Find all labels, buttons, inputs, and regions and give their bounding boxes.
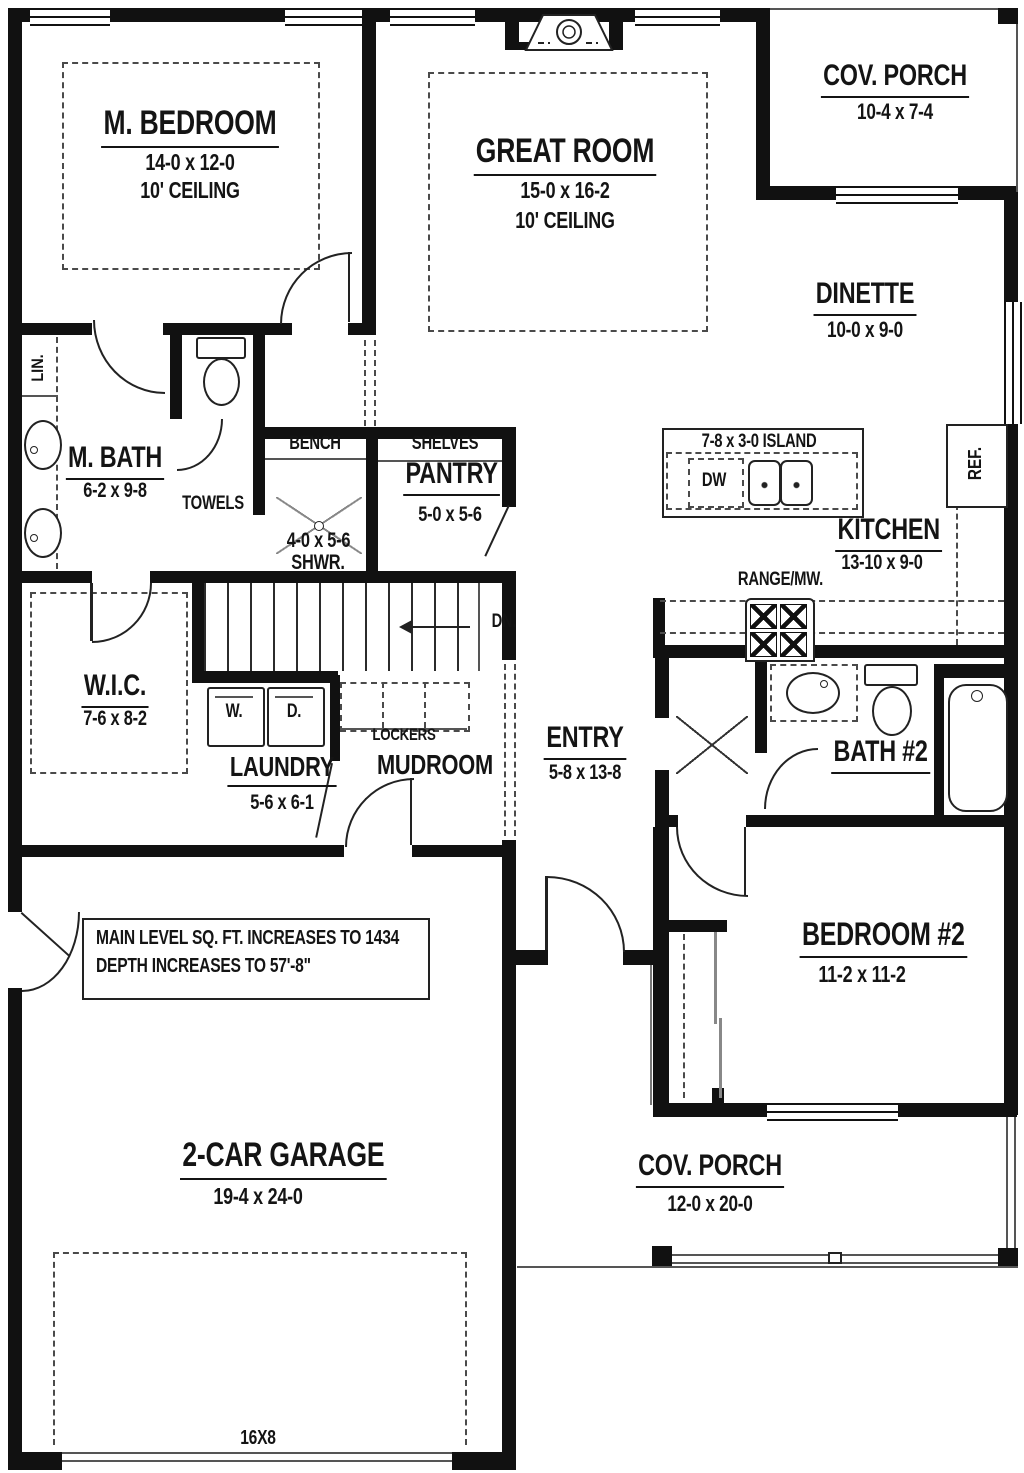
- locker-divider: [382, 682, 386, 728]
- bench-line: [265, 458, 366, 460]
- sink-icon: [24, 508, 62, 558]
- door-leaf-mudroom: [410, 778, 412, 845]
- window: [635, 8, 720, 26]
- window-dinette: [1004, 302, 1022, 424]
- counter-edge-bottom-inner: [660, 632, 1004, 636]
- label-dryer: D.: [275, 702, 314, 722]
- wall-hall-a: [655, 658, 669, 718]
- wall-hall-b: [655, 770, 669, 817]
- door-arc-wc: [177, 419, 223, 471]
- garage-floor-lines: [53, 1252, 467, 1445]
- wall-mbedroom-bottom-b: [163, 323, 292, 335]
- wall-closet-right: [755, 658, 767, 753]
- porch-post: [652, 1246, 672, 1266]
- wall-kitchen-bottom: [653, 645, 1017, 658]
- burner-icon: [750, 604, 777, 629]
- dryer-panel-line: [275, 696, 313, 698]
- wall-bath2-bottom-a: [655, 815, 678, 827]
- label-dishwasher: DW: [697, 471, 731, 491]
- wall-entry-garage: [502, 840, 516, 1470]
- island-sink-icon: [748, 460, 781, 506]
- island-sink-icon: [780, 460, 813, 506]
- burner-icon: [750, 632, 777, 657]
- wall-porch-top-left: [756, 8, 770, 200]
- room-label-entry: ENTRY: [538, 722, 632, 760]
- label-washer: W.: [215, 702, 254, 722]
- door-arc-mudroom-garage: [345, 778, 414, 847]
- room-dims-wic: 7-6 x 8-2: [57, 708, 174, 730]
- toilet-bowl-icon: [203, 358, 240, 406]
- room-dims-cov-porch-bottom: 12-0 x 20-0: [632, 1192, 788, 1215]
- closet2-slider: [714, 932, 717, 1024]
- label-garage-door-size: 16X8: [227, 1428, 289, 1449]
- label-stairs-dn: DN.: [482, 612, 526, 632]
- room-label-shower: SHWR.: [287, 552, 349, 574]
- washer-panel-line: [215, 696, 253, 698]
- porch-railing-right: [1006, 1117, 1016, 1254]
- wall-bedroom2-left: [653, 827, 669, 1117]
- wall-closet2-stub: [712, 1088, 724, 1103]
- room-dims-entry: 5-8 x 13-8: [538, 762, 632, 784]
- wall-garage-top-a: [8, 845, 344, 857]
- room-dims-m-bath: 6-2 x 9-8: [57, 480, 174, 502]
- wall-bedroom2-bottom-a: [653, 1103, 767, 1117]
- window-bedroom2: [767, 1103, 898, 1121]
- door-leaf-mbedroom: [348, 252, 350, 322]
- room-label-kitchen: KITCHEN: [835, 514, 929, 552]
- fireplace-icon: [500, 8, 630, 62]
- wall-mbedroom-great: [362, 8, 376, 335]
- toilet-icon: [864, 664, 918, 686]
- sink-icon: [786, 672, 840, 714]
- room-dims-kitchen: 13-10 x 9-0: [835, 552, 929, 574]
- room-label-m-bedroom: M. BEDROOM: [96, 106, 283, 148]
- closet2-dash: [683, 934, 687, 1098]
- wall-entry-bottom-b: [623, 950, 657, 965]
- door-arc-mbath: [93, 320, 165, 394]
- wall-stairs-bottom: [192, 671, 338, 683]
- room-label-great-room: GREAT ROOM: [471, 134, 658, 176]
- window: [30, 8, 110, 26]
- label-range: RANGE/MW.: [738, 570, 822, 590]
- wall-porch-top-bottom-a: [756, 186, 836, 200]
- wall-exterior-left-lower: [8, 988, 22, 1470]
- room-dims-great-room: 15-0 x 16-2: [471, 178, 658, 202]
- cased-opening: [364, 340, 376, 426]
- note-line-2: DEPTH INCREASES TO 57'-8": [96, 956, 353, 977]
- room-label-mudroom: MUDROOM: [373, 750, 498, 779]
- label-bench: BENCH: [284, 434, 346, 454]
- wall-garage-top-b: [412, 845, 504, 857]
- stairs-arrow-head: [399, 620, 412, 634]
- wall-entry-bottom-a: [502, 950, 548, 965]
- label-linen: LIN.: [14, 340, 62, 396]
- house-edge-line: [650, 965, 652, 1105]
- closet2-slider: [719, 1018, 722, 1098]
- label-refrigerator: REF.: [944, 430, 1008, 496]
- wall-laundry-mudroom: [330, 675, 340, 761]
- wall-garage-bottom-left: [8, 1452, 62, 1470]
- sink-drain-icon: [820, 680, 828, 688]
- room-ceiling-m-bedroom: 10' CEILING: [96, 178, 283, 202]
- room-label-dinette: DINETTE: [787, 278, 943, 316]
- porch-floor-line: [517, 1266, 1018, 1268]
- porch-rail-mid-post: [828, 1252, 842, 1264]
- cased-opening-entry: [504, 664, 516, 836]
- room-label-laundry: LAUNDRY: [227, 752, 336, 787]
- room-dims-laundry: 5-6 x 6-1: [227, 792, 336, 814]
- closet-bifold-doors: [676, 716, 748, 774]
- door-arc-bedroom2: [676, 827, 748, 897]
- room-dims-bedroom2: 11-2 x 11-2: [800, 962, 925, 986]
- room-dims-pantry: 5-0 x 5-6: [403, 504, 497, 526]
- room-label-bath2: BATH #2: [831, 736, 925, 774]
- wall-porch-top-bottom-b: [958, 186, 1018, 200]
- wall-shower-pantry: [366, 427, 378, 571]
- sink-drain-icon: [30, 446, 38, 454]
- porch-edge-right: [1016, 10, 1018, 192]
- room-ceiling-great-room: 10' CEILING: [471, 208, 658, 232]
- garage-door: [62, 1452, 452, 1462]
- wall-exterior-right-upper: [1004, 190, 1018, 302]
- wall-stairs-left: [192, 583, 204, 671]
- door-leaf-bedroom2: [744, 827, 746, 895]
- counter-edge-bottom: [660, 600, 1004, 604]
- window: [390, 8, 475, 26]
- door-arc-garage-service: [22, 912, 80, 992]
- locker-divider: [424, 682, 428, 728]
- label-towels: TOWELS: [178, 494, 248, 514]
- door-leaf-wic: [90, 583, 93, 641]
- door-arc-front: [547, 876, 625, 952]
- door-leaf-front: [545, 876, 548, 950]
- bathtub-icon: [948, 684, 1008, 812]
- label-lockers: LOCKERS: [372, 726, 436, 744]
- room-dims-cov-porch-top: 10-4 x 7-4: [817, 100, 973, 123]
- note-line-1: MAIN LEVEL SQ. FT. INCREASES TO 1434: [96, 928, 353, 949]
- stairs-edge: [478, 583, 480, 671]
- burner-icon: [780, 604, 807, 629]
- stairs-arrow-shaft: [412, 626, 470, 628]
- room-dims-m-bedroom: 14-0 x 12-0: [96, 150, 283, 174]
- toilet-bowl-icon: [872, 686, 912, 736]
- wall-tub-top: [944, 664, 1017, 678]
- counter-edge-right: [956, 504, 960, 645]
- wall-bedroom2-bottom-b: [898, 1103, 1017, 1117]
- wall-closet2-top: [669, 920, 727, 932]
- wall-tub-left: [934, 664, 944, 815]
- wall-mbedroom-bottom-c: [348, 323, 376, 335]
- room-label-m-bath: M. BATH: [57, 442, 174, 480]
- wall-wc-right: [253, 335, 265, 515]
- room-dims-shower: 4-0 x 5-6: [287, 530, 349, 552]
- room-dims-garage: 19-4 x 24-0: [180, 1184, 336, 1208]
- room-label-cov-porch-bottom: COV. PORCH: [632, 1150, 788, 1188]
- room-dims-dinette: 10-0 x 9-0: [787, 318, 943, 341]
- sink-drain-icon: [30, 534, 38, 542]
- room-label-pantry: PANTRY: [403, 458, 497, 496]
- toilet-icon: [196, 337, 246, 359]
- wall-mid-a: [8, 571, 92, 583]
- wall-bath2-bottom-b: [746, 815, 1017, 827]
- wall-kitchen-counter-stub: [653, 598, 665, 648]
- porch-post: [998, 1248, 1018, 1268]
- porch-post: [998, 8, 1018, 24]
- wall-pantry-right: [502, 427, 516, 507]
- tub-faucet-icon: [971, 690, 983, 702]
- wall-mbedroom-bottom-a: [8, 323, 92, 335]
- burner-icon: [780, 632, 807, 657]
- room-label-wic: W.I.C.: [57, 670, 174, 708]
- window: [285, 8, 365, 26]
- label-shelves: SHELVES: [412, 434, 474, 454]
- door-arc-bath2: [764, 748, 818, 809]
- label-island: 7-8 x 3-0 ISLAND: [701, 432, 818, 452]
- wall-exterior-left-upper: [8, 8, 22, 912]
- porch-edge-top: [770, 8, 1016, 10]
- room-label-cov-porch-top: COV. PORCH: [817, 60, 973, 98]
- floor-plan: M. BEDROOM 14-0 x 12-0 10' CEILING GREAT…: [0, 0, 1024, 1473]
- room-label-garage: 2-CAR GARAGE: [180, 1138, 336, 1180]
- window-porch-slider: [836, 186, 958, 204]
- room-label-bedroom2: BEDROOM #2: [800, 918, 925, 958]
- wall-wc-left: [170, 335, 182, 419]
